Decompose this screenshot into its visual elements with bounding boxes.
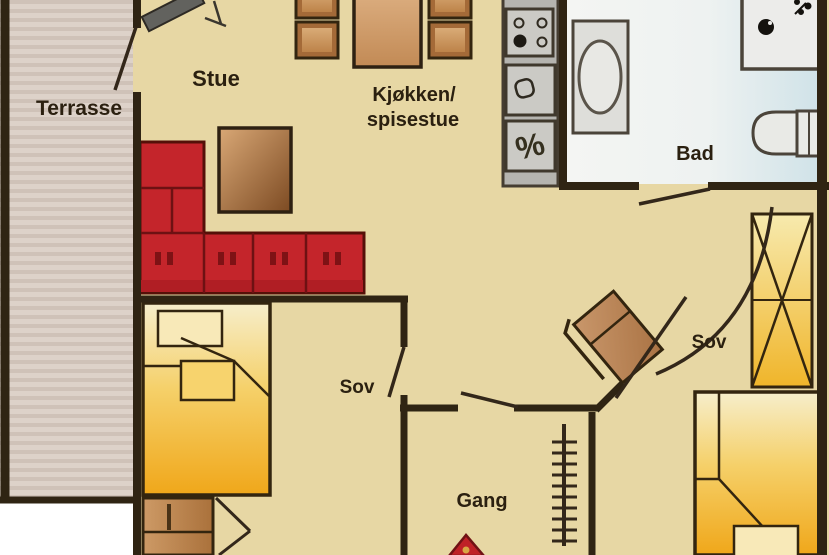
coffee-table [219, 128, 291, 212]
pillow [734, 526, 798, 555]
washbasin [573, 21, 628, 133]
dishwasher-symbol: % [506, 121, 555, 171]
shower-drain-icon [758, 19, 774, 35]
dining-chair [296, 0, 338, 18]
dining-table [354, 0, 421, 67]
wardrobe [752, 214, 812, 387]
room-label-terrace: Terrasse [36, 97, 122, 120]
room-label-bathroom: Bad [676, 143, 714, 165]
dining-chair [429, 22, 471, 58]
room-label-bedroom-right: Sov [692, 332, 727, 353]
kitchen-counter: % [503, 0, 558, 186]
room-label-bedroom-left: Sov [340, 377, 375, 398]
room-label-kitchen-line1: Kjøkken/ [372, 84, 456, 106]
terrace-door-leaf [115, 27, 136, 90]
room-label-hallway: Gang [456, 490, 507, 512]
floor-plan: % [0, 0, 829, 555]
room-label-living-room: Stue [192, 66, 240, 91]
stove-symbol [506, 9, 553, 56]
dining-chair [296, 22, 338, 58]
floor-plan-drawing: % [0, 0, 829, 555]
double-bed [695, 392, 821, 555]
toilet [753, 111, 821, 156]
shower [742, 0, 819, 69]
kitchen-sink-symbol [506, 65, 555, 115]
dining-group [296, 0, 471, 67]
dining-chair [429, 0, 471, 18]
room-label-kitchen-line2: spisestue [367, 109, 459, 131]
outside-area [0, 503, 133, 555]
double-bed [143, 303, 270, 495]
